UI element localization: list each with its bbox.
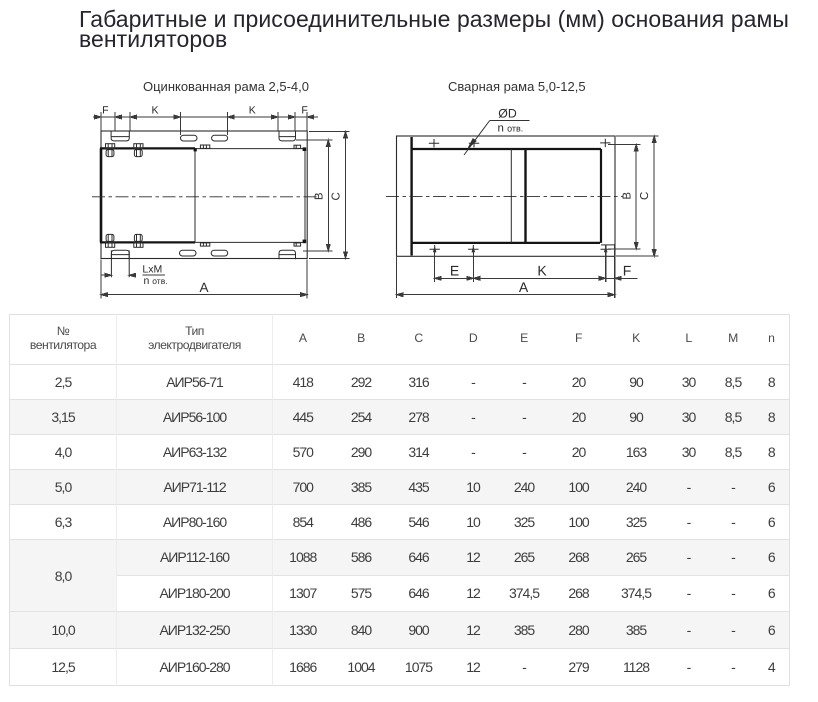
svg-text:B: B bbox=[622, 192, 634, 200]
svg-text:C: C bbox=[331, 192, 343, 200]
svg-text:B: B bbox=[314, 192, 326, 200]
svg-text:A: A bbox=[199, 280, 208, 295]
svg-text:n отв.: n отв. bbox=[144, 275, 168, 287]
svg-text:ØD: ØD bbox=[498, 107, 517, 121]
svg-text:A: A bbox=[519, 279, 529, 295]
svg-text:E: E bbox=[450, 263, 459, 279]
svg-text:F: F bbox=[102, 105, 108, 117]
svg-text:LxM: LxM bbox=[142, 263, 162, 275]
svg-text:n отв.: n отв. bbox=[498, 122, 524, 134]
svg-text:K: K bbox=[249, 105, 256, 117]
svg-text:F: F bbox=[301, 105, 307, 117]
svg-text:C: C bbox=[639, 192, 651, 200]
svg-text:F: F bbox=[623, 263, 632, 279]
svg-text:K: K bbox=[537, 263, 547, 279]
svg-text:K: K bbox=[151, 105, 158, 117]
